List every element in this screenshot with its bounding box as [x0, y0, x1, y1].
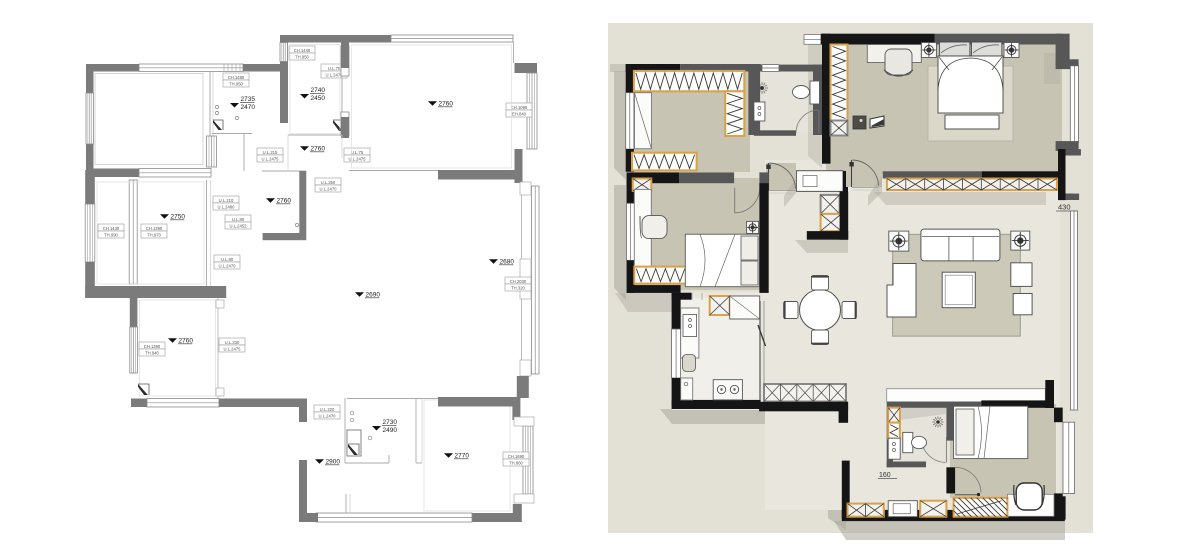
svg-text:U.L.230: U.L.230	[225, 340, 240, 345]
svg-text:2450: 2450	[311, 95, 326, 102]
svg-text:U.L.210: U.L.210	[219, 198, 234, 203]
svg-text:U.L.2452: U.L.2452	[230, 224, 248, 229]
svg-text:TH.940: TH.940	[145, 351, 159, 356]
svg-text:CH.1430: CH.1430	[103, 226, 120, 231]
svg-text:CH.1690: CH.1690	[508, 454, 525, 459]
svg-text:CH.1390: CH.1390	[146, 226, 163, 231]
svg-text:U.L.80: U.L.80	[232, 217, 245, 222]
svg-text:TH.950: TH.950	[229, 82, 243, 87]
svg-text:2490: 2490	[383, 427, 398, 434]
svg-text:CH.1440: CH.1440	[294, 48, 311, 53]
svg-text:CH.1390: CH.1390	[144, 344, 161, 349]
svg-text:U.L.220: U.L.220	[320, 407, 335, 412]
svg-text:U.L.2470: U.L.2470	[219, 264, 237, 269]
svg-text:U.L.2475: U.L.2475	[262, 157, 280, 162]
svg-text:U.L.250: U.L.250	[321, 180, 336, 185]
svg-text:TH.990: TH.990	[104, 233, 118, 238]
svg-text:2760: 2760	[439, 101, 454, 108]
svg-text:U.L.215: U.L.215	[263, 150, 278, 155]
svg-text:TH.970: TH.970	[147, 233, 161, 238]
svg-text:U.L.75: U.L.75	[351, 150, 364, 155]
svg-text:U.L.2475: U.L.2475	[326, 73, 344, 78]
svg-text:160: 160	[879, 472, 891, 479]
svg-text:CH.2030: CH.2030	[510, 279, 527, 284]
svg-text:TH.950: TH.950	[295, 55, 309, 60]
svg-text:U.L.75: U.L.75	[328, 66, 341, 71]
svg-text:U.L.80: U.L.80	[221, 257, 234, 262]
svg-text:CH.1090: CH.1090	[511, 105, 528, 110]
svg-text:2470: 2470	[241, 104, 256, 111]
svg-text:U.L.2470: U.L.2470	[319, 414, 337, 419]
svg-text:U.L.2475: U.L.2475	[349, 157, 367, 162]
svg-text:EH.840: EH.840	[512, 112, 527, 117]
svg-text:TH.320: TH.320	[511, 286, 525, 291]
svg-text:U.L.2470: U.L.2470	[320, 187, 338, 192]
svg-text:430: 430	[1058, 203, 1071, 212]
svg-text:TH.860: TH.860	[509, 461, 523, 466]
svg-text:U.L.2475: U.L.2475	[224, 347, 242, 352]
svg-text:U.L.2480: U.L.2480	[218, 205, 236, 210]
svg-text:CH.1480: CH.1480	[228, 75, 245, 80]
